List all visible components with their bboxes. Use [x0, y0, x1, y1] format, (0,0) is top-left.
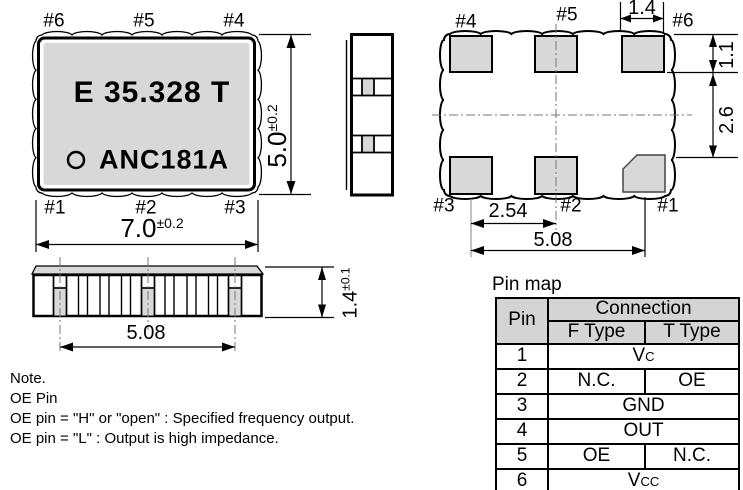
dim-height-tol: ±0.2 [264, 104, 280, 131]
pin-map-header-pin: Pin [496, 298, 548, 344]
pin-map-cell-3-pin: 3 [496, 394, 548, 419]
top-view-pin4-label: #4 [223, 12, 244, 31]
pin-map-row-2: 2 N.C. OE [496, 369, 739, 394]
pin-map-cell-1-connection: Vc [548, 344, 739, 369]
dim-height-side-tol: ±0.1 [339, 267, 353, 290]
pin-map-title: Pin map [492, 274, 562, 296]
pin-map-cell-5-t: N.C. [645, 444, 739, 469]
top-view-pin5-label: #5 [133, 12, 154, 31]
dim-height-label: 5.0±0.2 [264, 104, 290, 167]
top-view-pin3-label: #3 [224, 199, 245, 218]
marking-frequency: E 35.328 T [74, 78, 231, 108]
dim-pad-pitch-label: 2.54 [489, 201, 528, 221]
pin-map-cell-6-connection: Vcc [548, 469, 739, 490]
package-drawing-page: #6 #5 #4 #1 #2 #3 E 35.328 T ANC181A 7.0… [0, 0, 743, 490]
bottom-view-pin6-label: #6 [672, 12, 693, 31]
notes-block: Note. OE Pin OE pin = "H" or "open" : Sp… [10, 369, 354, 449]
top-view-pin6-label: #6 [43, 12, 64, 31]
bottom-view-pin5-label: #5 [556, 6, 577, 25]
pin-map-header-connection: Connection [548, 298, 739, 321]
bottom-view-pin3-label: #3 [433, 197, 454, 216]
bottom-view-pin1-label: #1 [657, 197, 678, 216]
dim-width-label: 7.0±0.2 [120, 215, 183, 241]
dim-row-spacing-label: 2.6 [717, 106, 737, 134]
dim-height-1_4-side [265, 267, 334, 318]
pin-map-row-5: 5 OE N.C. [496, 444, 739, 469]
pin-map-cell-4-connection: OUT [548, 419, 739, 444]
pin-map-cell-2-t: OE [645, 369, 739, 394]
pin-map-cell-4-pin: 4 [496, 419, 548, 444]
pin-map-header-f-type: F Type [548, 321, 645, 344]
pad-6 [622, 36, 664, 72]
dim-span-side-label: 5.08 [127, 323, 166, 343]
dim-height-side-value: 1.4 [340, 291, 362, 319]
pin-map-cell-2-pin: 2 [496, 369, 548, 394]
pin-map-row-3: 3 GND [496, 394, 739, 419]
pin-map-cell-5-f: OE [548, 444, 645, 469]
note-line-oe-pin: OE Pin [10, 389, 354, 409]
dim-pad-height-label: 1.1 [717, 41, 737, 69]
dim-pad-span-label: 5.08 [534, 230, 573, 250]
dim-width-tol: ±0.2 [157, 215, 184, 231]
pin-map-row-6: 6 Vcc [496, 469, 739, 490]
pad-4 [450, 36, 492, 72]
bottom-view-pin4-label: #4 [455, 13, 476, 32]
side-view-vertical [347, 35, 393, 196]
pin-map-table: Pin Connection F Type T Type 1 Vc 2 N.C.… [495, 297, 740, 490]
dim-width-value: 7.0 [120, 213, 156, 243]
marking-part-number: ANC181A [99, 147, 229, 174]
pin-map-row-4: 4 OUT [496, 419, 739, 444]
pad-3 [450, 157, 492, 194]
dim-pad-width-label: 1.4 [628, 0, 656, 18]
pin-map-cell-6-pin: 6 [496, 469, 548, 490]
side-pad-lower [363, 137, 373, 152]
pin-map-header-t-type: T Type [645, 321, 739, 344]
pin-map-cell-2-f: N.C. [548, 369, 645, 394]
pin-map-cell-5-pin: 5 [496, 444, 548, 469]
dim-height-value: 5.0 [262, 132, 292, 168]
note-line-oe-high: OE pin = "H" or "open" : Specified frequ… [10, 409, 354, 429]
note-line-oe-low: OE pin = "L" : Output is high impedance. [10, 429, 354, 449]
note-title: Note. [10, 369, 354, 389]
pin-map-row-1: 1 Vc [496, 344, 739, 369]
dim-height-side-label: 1.4±0.1 [340, 267, 361, 318]
top-view-pin1-label: #1 [44, 199, 65, 218]
pin-map-cell-1-pin: 1 [496, 344, 548, 369]
side-pad-upper [363, 80, 373, 95]
bottom-view-pin2-label: #2 [560, 197, 581, 216]
pin-map-cell-3-connection: GND [548, 394, 739, 419]
